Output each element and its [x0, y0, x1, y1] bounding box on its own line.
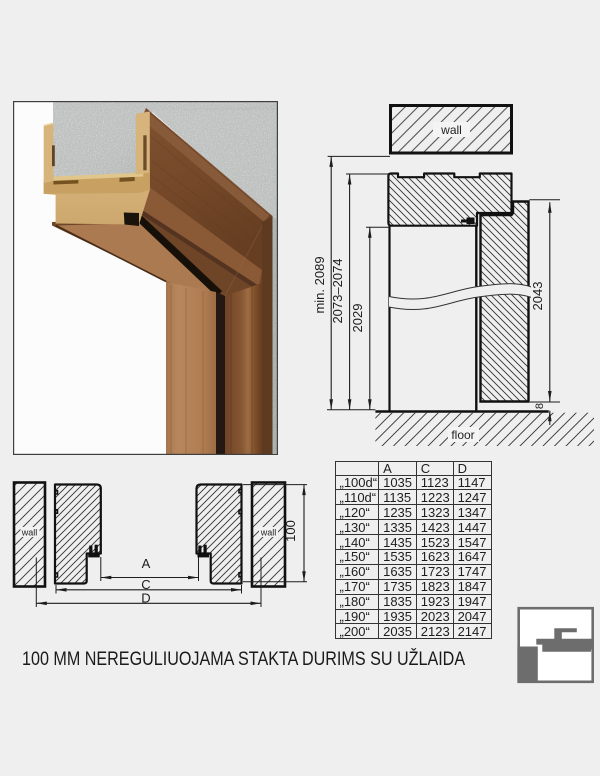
svg-text:wall: wall — [440, 123, 462, 137]
svg-text:100: 100 — [283, 520, 298, 542]
svg-text:2043: 2043 — [530, 282, 545, 311]
svg-text:2029: 2029 — [350, 304, 365, 333]
svg-text:wall: wall — [260, 528, 277, 538]
svg-text:A: A — [142, 556, 151, 571]
svg-text:floor: floor — [451, 428, 474, 442]
svg-text:8: 8 — [534, 403, 546, 409]
svg-text:wall: wall — [21, 528, 38, 538]
svg-text:D: D — [141, 591, 150, 606]
svg-text:min. 2089: min. 2089 — [312, 256, 327, 313]
svg-text:2073–2074: 2073–2074 — [330, 258, 345, 323]
